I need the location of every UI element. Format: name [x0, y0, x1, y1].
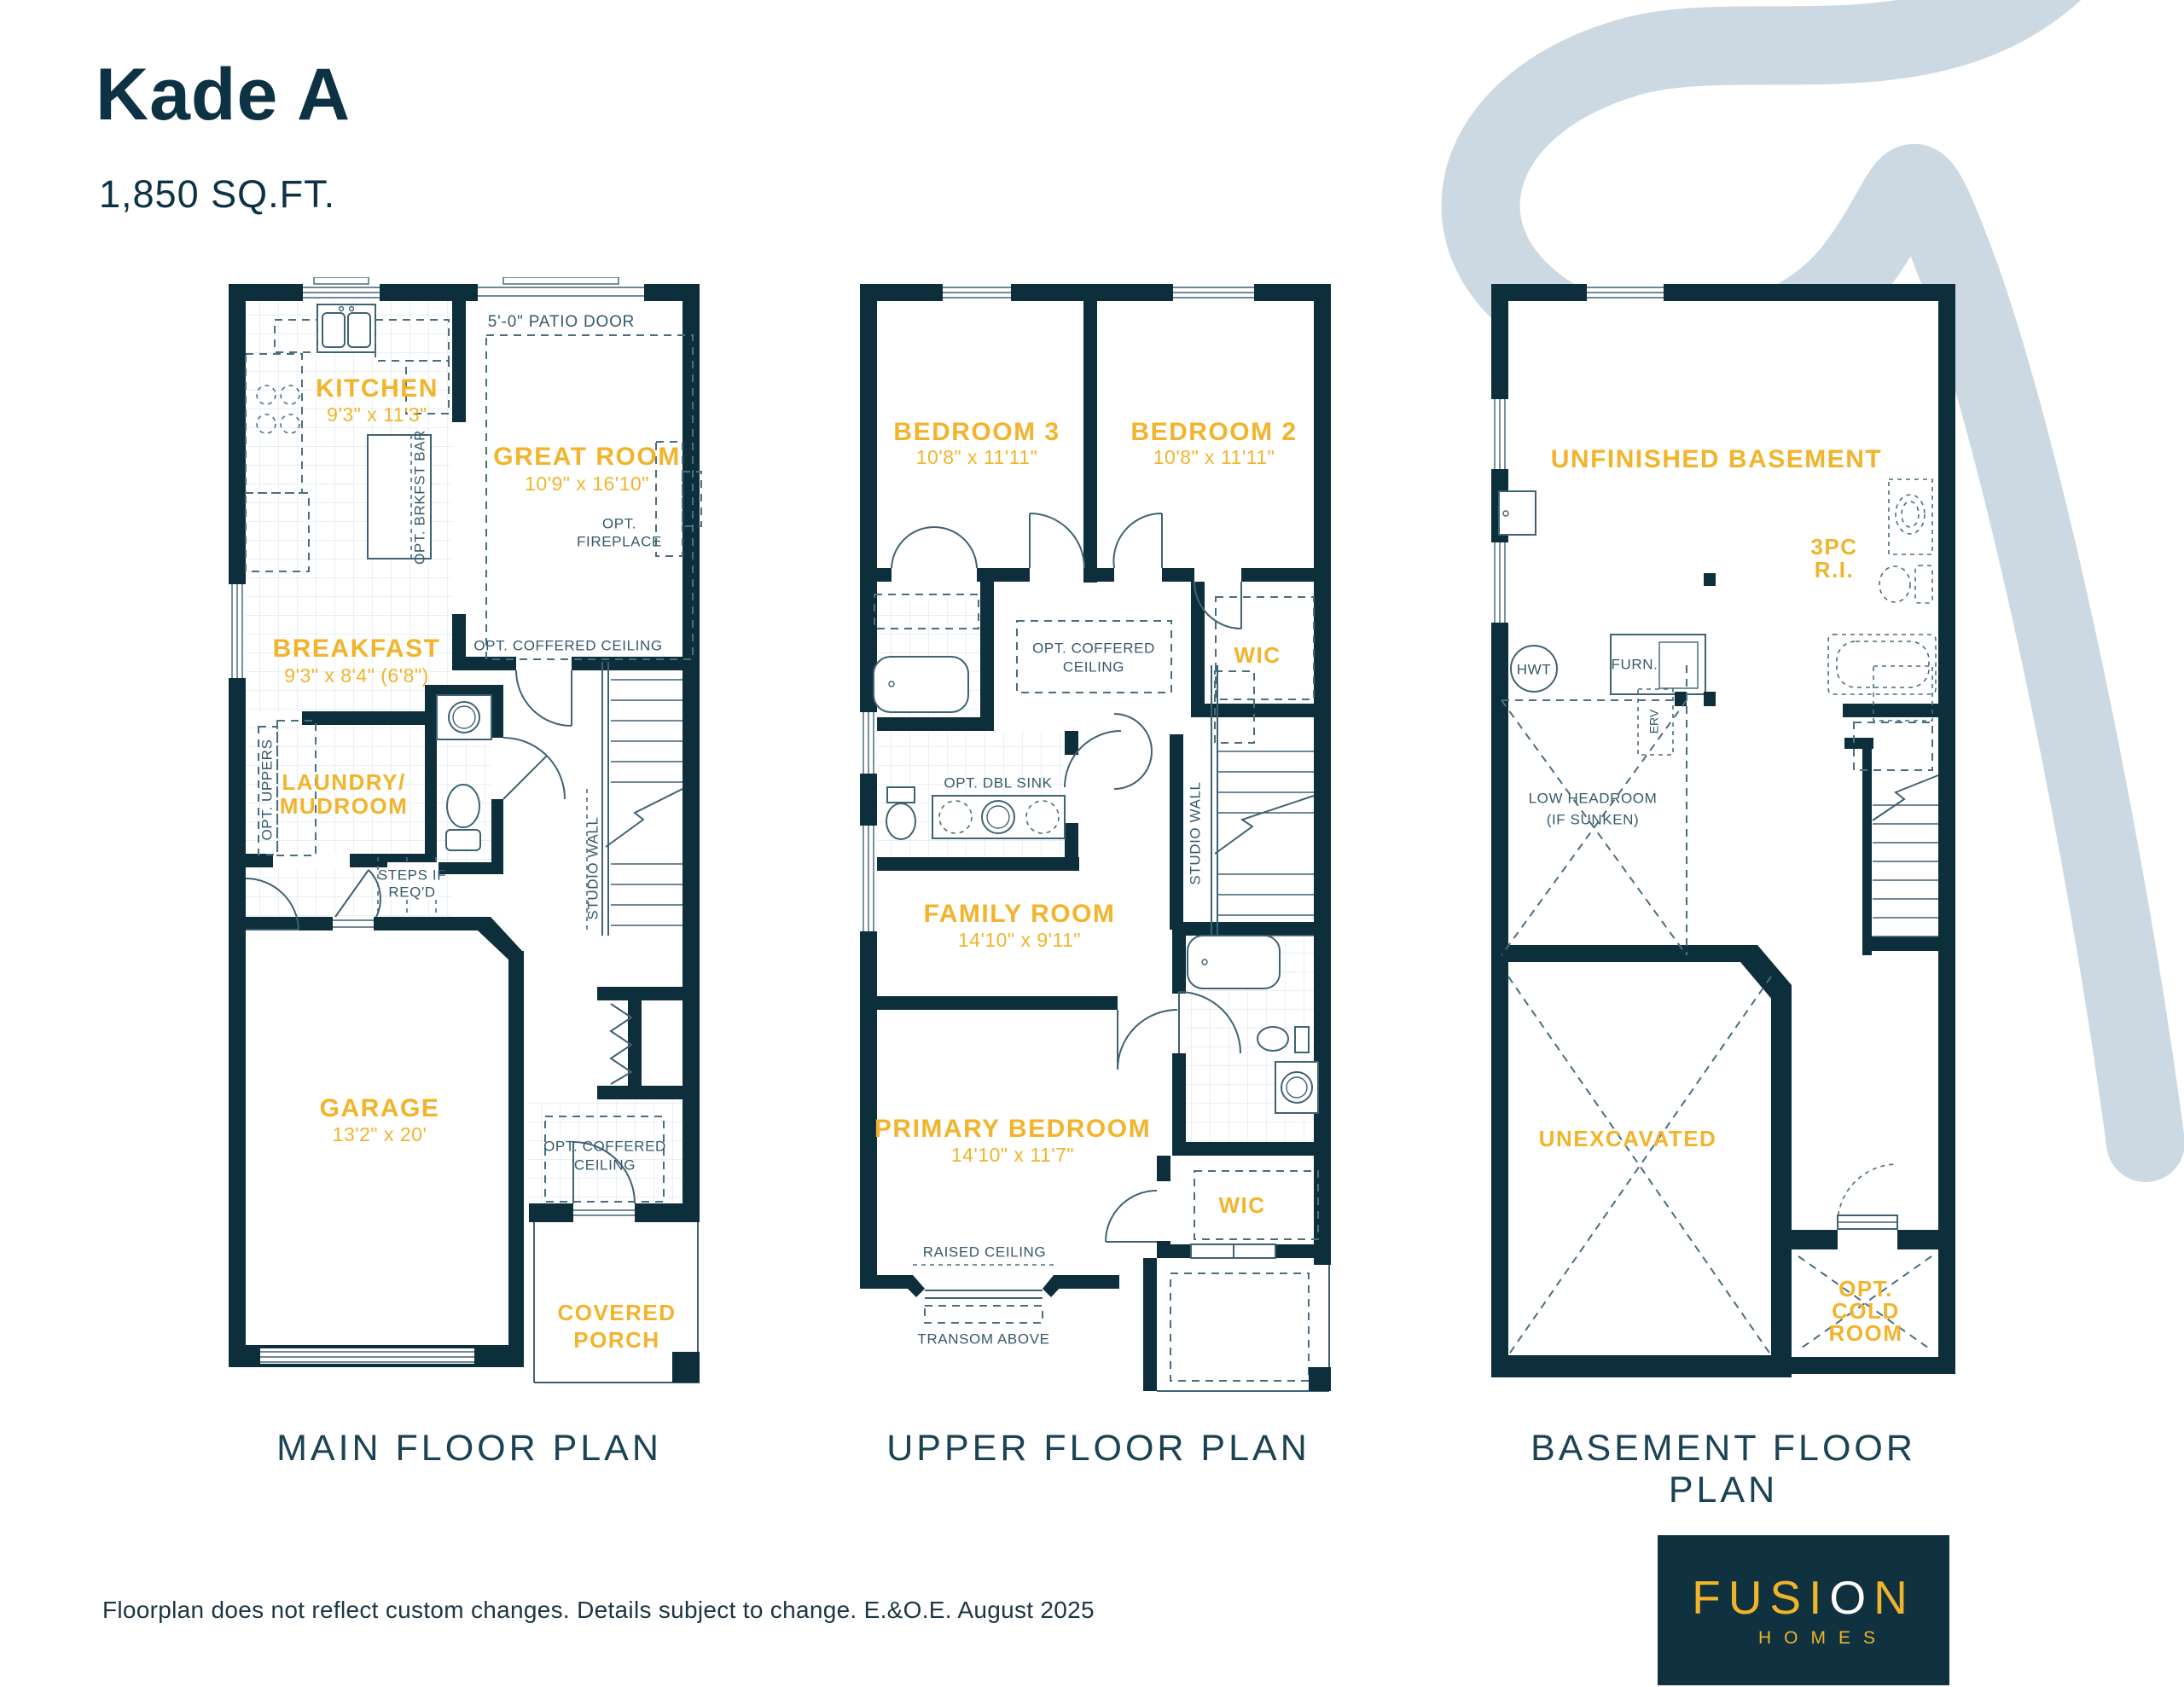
- furnace-label: FURN.: [1612, 656, 1658, 672]
- upper-floor-plan-drawing: BEDROOM 3 10'8" x 11'11" BEDROOM 2 10'8"…: [853, 277, 1344, 1403]
- opt-fireplace-note-1: OPT.: [602, 515, 636, 531]
- unexcavated-label: UNEXCAVATED: [1539, 1126, 1717, 1151]
- dbl-sink-note: OPT. DBL SINK: [944, 774, 1052, 791]
- kitchen-sink-icon: [317, 304, 375, 352]
- low-headroom-label-1: LOW HEADROOM: [1529, 790, 1658, 806]
- upper-studio-wall-note: STUDIO WALL: [1187, 781, 1203, 884]
- garage-label: GARAGE: [320, 1094, 440, 1122]
- bedroom2-label: BEDROOM 2: [1130, 418, 1297, 446]
- bedroom3-dims: 10'8" x 11'11": [916, 446, 1038, 468]
- steps-note-2: REQ'D: [388, 884, 435, 900]
- studio-wall-note: STUDIO WALL: [584, 816, 601, 919]
- great-room-dims: 10'9" x 16'10": [525, 472, 649, 495]
- upper-coffered-note-1: OPT. COFFERED: [1032, 640, 1155, 656]
- kitchen-dims: 9'3" x 11'3": [327, 403, 427, 426]
- foyer-coffered-note-1: OPT. COFFERED: [543, 1138, 666, 1154]
- breakfast-dims: 9'3" x 8'4" (6'8"): [284, 664, 428, 687]
- wic-primary-label: WIC: [1218, 1192, 1265, 1218]
- laundry-label-1: LAUNDRY/: [282, 769, 405, 795]
- porch-label-1: COVERED: [557, 1300, 676, 1325]
- kitchen-label: KITCHEN: [316, 374, 439, 403]
- disclaimer-text: Floorplan does not reflect custom change…: [102, 1597, 1095, 1624]
- logo-fusi: FUSI: [1692, 1571, 1829, 1624]
- fusion-homes-logo: FUSION HOMES: [1658, 1535, 1949, 1685]
- opt-uppers-note: OPT. UPPERS: [258, 739, 275, 840]
- raised-ceiling-note: RAISED CEILING: [923, 1244, 1046, 1260]
- coffered-ceiling-note: OPT. COFFERED CEILING: [473, 637, 662, 653]
- erv-label: ERV: [1647, 709, 1661, 733]
- brkfst-bar-note: OPT. BRKFST BAR: [411, 430, 427, 565]
- opt-fireplace-note-2: FIREPLACE: [577, 533, 662, 549]
- page-title: Kade A: [96, 53, 351, 137]
- logo-o: O: [1829, 1571, 1873, 1624]
- basement-floor-caption: BASEMENT FLOOR PLAN: [1484, 1428, 1962, 1511]
- foyer-coffered-note-2: CEILING: [574, 1157, 636, 1173]
- transom-note: TRANSOM ABOVE: [917, 1330, 1049, 1347]
- laundry-label-2: MUDROOM: [280, 793, 409, 819]
- basement-floor-plan-drawing: UNFINISHED BASEMENT 3PC R.I. HWT FURN. E…: [1484, 277, 1962, 1403]
- wic-bedroom2-label: WIC: [1234, 642, 1281, 668]
- porch-label-2: PORCH: [573, 1327, 659, 1353]
- logo-homes: HOMES: [1758, 1629, 1888, 1647]
- threepc-label-2: R.I.: [1815, 557, 1854, 583]
- threepc-label-1: 3PC: [1810, 534, 1857, 559]
- patio-door-note: 5'-0" PATIO DOOR: [488, 313, 635, 331]
- main-floor-caption: MAIN FLOOR PLAN: [222, 1428, 717, 1470]
- primary-bedroom-label: PRIMARY BEDROOM: [874, 1115, 1151, 1143]
- logo-wordmark: FUSION: [1692, 1574, 1915, 1621]
- upper-floor-caption: UPPER FLOOR PLAN: [853, 1428, 1344, 1470]
- family-room-label: FAMILY ROOM: [924, 900, 1116, 928]
- main-floor-plan-drawing: KITCHEN 9'3" x 11'3" GREAT ROOM 10'9" x …: [222, 277, 717, 1403]
- upper-coffered-note-2: CEILING: [1063, 658, 1124, 675]
- hwt-label: HWT: [1517, 661, 1552, 677]
- garage-dims: 13'2" x 20': [333, 1123, 427, 1145]
- low-headroom-label-2: (IF SUNKEN): [1547, 811, 1640, 827]
- bedroom3-label: BEDROOM 3: [893, 418, 1060, 446]
- cold-room-label-3: ROOM: [1829, 1320, 1903, 1346]
- steps-note-1: STEPS IF: [378, 867, 446, 883]
- family-room-dims: 14'10" x 9'11": [958, 929, 1081, 951]
- square-footage: 1,850 SQ.FT.: [99, 172, 335, 217]
- logo-n: N: [1873, 1571, 1915, 1624]
- bedroom2-dims: 10'8" x 11'11": [1153, 446, 1275, 468]
- primary-bedroom-dims: 14'10" x 11'7": [951, 1144, 1074, 1166]
- floorplan-sheet: { "header": { "title": "Kade A", "sqft":…: [0, 0, 2184, 1687]
- great-room-label: GREAT ROOM: [493, 443, 680, 471]
- unfinished-basement-label: UNFINISHED BASEMENT: [1551, 445, 1883, 473]
- breakfast-label: BREAKFAST: [273, 635, 441, 663]
